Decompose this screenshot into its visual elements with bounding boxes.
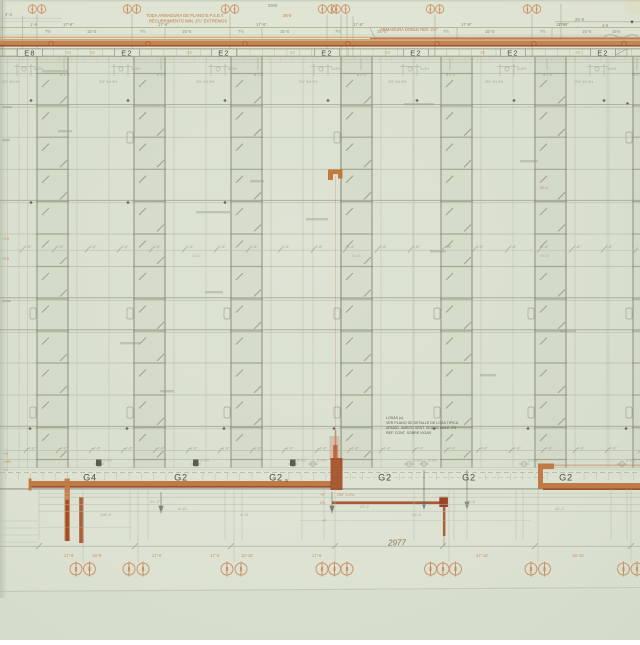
svg-text:4-6: 4-6 (602, 23, 609, 28)
svg-text:17’-9: 17’-9 (64, 553, 74, 558)
svg-text:1’-6: 1’-6 (30, 22, 38, 27)
svg-text:25’-6: 25’-6 (412, 512, 422, 517)
svg-text:+3: +3 (3, 467, 8, 472)
svg-text:8: 8 (88, 567, 91, 573)
svg-text:G2: G2 (462, 472, 476, 482)
svg-text:4’-6”: 4’-6” (476, 245, 484, 249)
svg-text:25: 25 (66, 50, 72, 55)
svg-text:4’-6”: 4’-6” (609, 447, 617, 451)
svg-text:4’-6”: 4’-6” (89, 245, 97, 249)
svg-text:4’-6”: 4’-6” (573, 245, 581, 249)
svg-text:4’-6”: 4’-6” (28, 447, 36, 451)
svg-text:2½: 2½ (320, 501, 326, 505)
svg-text:25: 25 (187, 50, 193, 55)
svg-text:+5’: +5’ (3, 451, 9, 456)
svg-text:19’-8: 19’-8 (92, 553, 102, 558)
svg-text:4’-6”: 4’-6” (351, 447, 359, 451)
svg-text:8: 8 (454, 567, 457, 573)
svg-text:15-0: 15-0 (612, 29, 621, 34)
svg-text:8: 8 (346, 567, 349, 573)
svg-text:4’-6”: 4’-6” (448, 447, 456, 451)
svg-text:7½: 7½ (238, 29, 244, 34)
svg-text:+7: +7 (322, 519, 326, 523)
svg-text:4’-6”: 4’-6” (286, 447, 294, 451)
svg-text:4’-6”: 4’-6” (157, 447, 165, 451)
svg-text:TODA ARMADURA DE PLANO E.P.S.: TODA ARMADURA DE PLANO E.P.S.B.T. (146, 13, 224, 18)
svg-text:8: 8 (333, 567, 336, 573)
svg-text:E2: E2 (321, 48, 332, 57)
svg-text:8: 8 (75, 567, 78, 573)
svg-text:+4½: +4½ (3, 459, 12, 464)
svg-text:2977: 2977 (387, 539, 406, 548)
svg-text:4’-6”: 4’-6” (541, 245, 549, 249)
svg-text:4’-6”: 4’-6” (121, 245, 129, 249)
svg-text:4’-6”: 4’-6” (379, 245, 387, 249)
svg-text:E8: E8 (24, 48, 35, 57)
svg-text:29’-2: 29’-2 (360, 504, 370, 509)
svg-text:+9: +9 (320, 493, 324, 497)
svg-text:E2: E2 (507, 48, 518, 57)
svg-text:4’-6”: 4’-6” (24, 245, 32, 249)
svg-text:25’-6: 25’-6 (575, 17, 585, 22)
svg-text:4’-6”: 4’-6” (412, 245, 420, 249)
svg-text:14-16: 14-16 (540, 254, 549, 258)
svg-text:G2: G2 (378, 472, 392, 482)
svg-text:4’-6”: 4’-6” (250, 245, 258, 249)
svg-text:24’-2”: 24’-2” (150, 499, 161, 504)
svg-text:7½: 7½ (540, 29, 546, 34)
svg-text:15’-0: 15’-0 (87, 29, 97, 34)
svg-text:3’-0½: 3’-0½ (528, 459, 537, 463)
svg-text:17’-0: 17’-0 (210, 553, 220, 558)
svg-text:17’-10: 17’-10 (476, 553, 488, 558)
svg-text:3’-0½: 3’-0½ (317, 459, 326, 463)
svg-text:G2: G2 (174, 472, 188, 482)
svg-text:REF. CONT. SOBRE VIGAS: REF. CONT. SOBRE VIGAS (386, 431, 432, 435)
svg-text:2506: 2506 (268, 3, 278, 8)
svg-text:4’-6”: 4’-6” (480, 447, 488, 451)
svg-text:4’-6”: 4’-6” (416, 447, 424, 451)
svg-text:19’-10: 19’-10 (572, 553, 584, 558)
svg-text:17’-0: 17’-0 (152, 553, 162, 558)
svg-text:4’-6”: 4’-6” (315, 245, 323, 249)
svg-text:A-10: A-10 (178, 506, 187, 511)
svg-text:4’-6”: 4’-6” (56, 245, 64, 249)
svg-text:15’-0: 15’-0 (582, 29, 592, 34)
svg-text:14-16: 14-16 (192, 254, 201, 258)
svg-text:8: 8 (429, 567, 432, 573)
svg-text:3’-0½: 3’-0½ (626, 459, 635, 463)
svg-text:7½: 7½ (335, 29, 341, 34)
svg-text:8: 8 (543, 567, 546, 573)
svg-text:17’-6”: 17’-6” (63, 22, 74, 27)
svg-text:4’-6”: 4’-6” (319, 447, 327, 451)
svg-text:3’-0½: 3’-0½ (200, 459, 209, 463)
svg-text:4’-6”: 4’-6” (190, 447, 198, 451)
svg-text:7½: 7½ (443, 29, 449, 34)
svg-text:4’-6”: 4’-6” (254, 447, 262, 451)
svg-text:4’-6”: 4’-6” (222, 447, 230, 451)
svg-text:8: 8 (128, 567, 131, 573)
svg-text:17’-6: 17’-6 (312, 553, 322, 558)
svg-text:+2’6: +2’6 (2, 237, 9, 241)
svg-text:7½: 7½ (45, 29, 51, 34)
svg-text:REF 2-0½: REF 2-0½ (337, 493, 355, 497)
svg-text:4’-6”: 4’-6” (93, 447, 101, 451)
svg-text:7½: 7½ (140, 29, 146, 34)
svg-text:3’-0½: 3’-0½ (297, 459, 306, 463)
svg-text:E2: E2 (410, 48, 421, 57)
svg-text:15’-0: 15’-0 (485, 29, 495, 34)
svg-text:3’-0½: 3’-0½ (103, 459, 112, 463)
svg-text:8: 8 (321, 567, 324, 573)
svg-text:8: 8 (530, 567, 533, 573)
svg-text:4’-6”: 4’-6” (218, 245, 226, 249)
svg-text:118’-0: 118’-0 (100, 512, 112, 517)
svg-text:17’-6”: 17’-6” (461, 22, 472, 27)
svg-text:3’-0½: 3’-0½ (413, 459, 422, 463)
svg-text:8: 8 (442, 567, 445, 573)
svg-text:28’-6: 28’-6 (466, 499, 476, 504)
svg-text:14-16: 14-16 (352, 254, 361, 258)
svg-text:E2: E2 (218, 48, 229, 57)
svg-text:E2: E2 (597, 48, 608, 57)
svg-text:4’-11: 4’-11 (240, 512, 249, 517)
svg-text:LOSAS (x): LOSAS (x) (386, 416, 403, 420)
svg-text:8: 8 (142, 567, 145, 573)
svg-text:4’-6”: 4’-6” (513, 447, 521, 451)
svg-text:17’-6”: 17’-6” (353, 22, 364, 27)
svg-text:4’-6”: 4’-6” (282, 245, 290, 249)
svg-text:G4: G4 (83, 472, 97, 482)
svg-text:8: 8 (622, 567, 625, 573)
svg-text:4’-6”: 4’-6” (347, 245, 355, 249)
svg-text:15’-0: 15’-0 (280, 29, 290, 34)
svg-text:4’-6”: 4’-6” (545, 447, 553, 451)
svg-text:15’-0: 15’-0 (182, 29, 192, 34)
svg-text:17’-6”: 17’-6” (256, 22, 267, 27)
svg-text:25: 25 (575, 50, 581, 55)
svg-text:3’-0½: 3’-0½ (428, 459, 437, 463)
svg-text:ARMAD. AMBOS SENT. SEGUN CALC.: ARMAD. AMBOS SENT. SEGUN CALC. 2½ (386, 426, 456, 430)
svg-text:25: 25 (480, 50, 486, 55)
svg-text:8: 8 (240, 567, 243, 573)
svg-text:25: 25 (385, 50, 391, 55)
svg-text:25-2: 25-2 (540, 185, 549, 190)
svg-text:25: 25 (290, 50, 296, 55)
svg-text:ARMADURA DOBLE REF. 2½”: ARMADURA DOBLE REF. 2½” (380, 27, 438, 32)
svg-text:4’-6”: 4’-6” (383, 447, 391, 451)
svg-text:E2: E2 (121, 48, 132, 57)
svg-text:VER PLANO DE DETALLE DE LOSA T: VER PLANO DE DETALLE DE LOSA TIPICA (386, 421, 459, 425)
svg-text:a: a (285, 478, 288, 484)
svg-text:RECUBRIMIENTO MIN. 2½” EXTREMO: RECUBRIMIENTO MIN. 2½” EXTREMOS (149, 19, 227, 24)
svg-text:8: 8 (636, 567, 639, 573)
svg-text:4’-6”: 4’-6” (444, 245, 452, 249)
svg-text:4’-6”: 4’-6” (153, 245, 161, 249)
svg-text:G2: G2 (269, 472, 283, 482)
svg-text:4’-6”: 4’-6” (186, 245, 194, 249)
svg-text:17’-6”: 17’-6” (556, 22, 567, 27)
svg-text:8: 8 (226, 567, 229, 573)
svg-text:24’-2: 24’-2 (555, 506, 565, 511)
svg-text:4’-6”: 4’-6” (577, 447, 585, 451)
svg-text:4’-6”: 4’-6” (605, 245, 613, 249)
svg-text:25: 25 (90, 50, 96, 55)
svg-text:4’-6”: 4’-6” (125, 447, 133, 451)
svg-text:4’-6”: 4’-6” (60, 447, 68, 451)
svg-text:G2: G2 (559, 472, 573, 482)
svg-text:4’-6”: 4’-6” (509, 245, 517, 249)
svg-text:+2’6: +2’6 (2, 257, 9, 261)
svg-text:12’-10: 12’-10 (241, 553, 253, 558)
svg-text:4’-2: 4’-2 (5, 12, 13, 17)
svg-text:25-0: 25-0 (283, 13, 292, 18)
